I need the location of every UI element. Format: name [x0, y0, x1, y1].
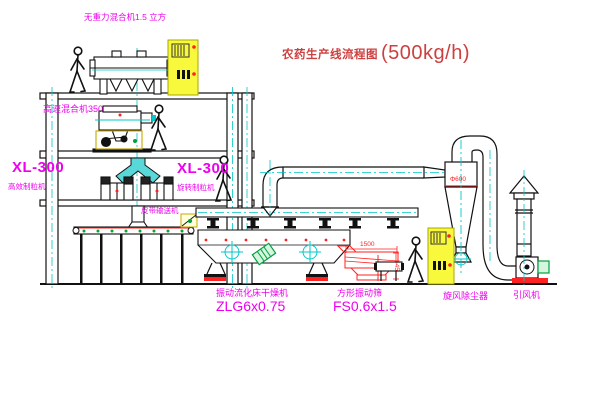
label-granulator-left-name: 高效制粒机	[8, 183, 46, 191]
granulator-right	[141, 177, 173, 200]
dryer-feed-box	[181, 214, 197, 227]
person-ground	[408, 237, 423, 282]
label-granulator-left-model: XL-300	[12, 160, 64, 175]
pesticide-line-flow-diagram: 农药生产线流程图 (500kg/h) 无重力混合机1.5 立方 高速混合机350…	[0, 0, 600, 403]
label-sieve-name: 方形振动筛	[337, 289, 382, 298]
granulator-left	[101, 177, 133, 200]
title-text: 农药生产线流程图	[282, 46, 378, 62]
label-granulator-mid-model: XL-300	[177, 161, 229, 176]
dim-sieve-length: 1500	[360, 242, 374, 249]
title-capacity: (500kg/h)	[381, 42, 470, 65]
dim-sieve-height: 545	[393, 260, 400, 271]
y-duct	[116, 158, 160, 183]
page-title: 农药生产线流程图 (500kg/h)	[282, 42, 470, 65]
dim-cyclone-diameter: Φ600	[450, 177, 466, 184]
induced-draft-fan	[512, 257, 549, 283]
label-granulator-mid-name: 旋转制粒机	[177, 184, 215, 192]
belt-conveyor	[73, 227, 194, 283]
label-sieve-model: FS0.6x1.5	[333, 299, 397, 313]
label-belt-conveyor: 皮带输送机	[141, 207, 179, 215]
label-gravity-mixer: 无重力混合机1.5 立方	[84, 13, 166, 22]
label-cyclone: 旋风除尘器	[443, 292, 488, 301]
label-dryer-model: ZLG6x0.75	[216, 299, 285, 313]
person-second-floor	[151, 105, 166, 150]
person-roof	[70, 47, 85, 92]
control-cabinet-1	[168, 40, 198, 95]
control-cabinet-2	[428, 228, 454, 284]
label-fan: 引风机	[513, 291, 540, 300]
label-dryer-name: 振动流化床干燥机	[216, 289, 288, 298]
label-high-speed-mixer: 高速混合机350	[43, 105, 103, 114]
